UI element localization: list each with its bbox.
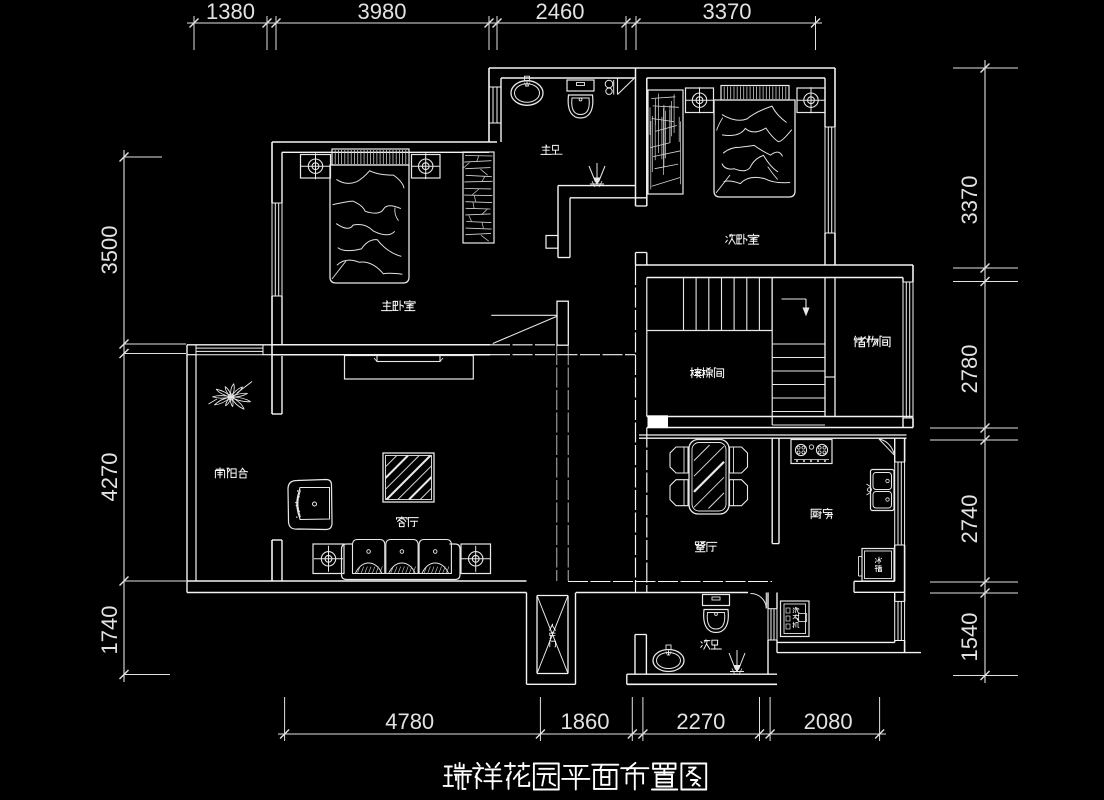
svg-text:2270: 2270	[676, 709, 725, 734]
svg-text:2740: 2740	[957, 495, 982, 544]
svg-text:4780: 4780	[385, 709, 434, 734]
svg-text:2460: 2460	[536, 0, 585, 24]
svg-text:1380: 1380	[206, 0, 255, 24]
svg-text:1860: 1860	[561, 709, 610, 734]
svg-text:3500: 3500	[97, 226, 122, 275]
svg-text:2080: 2080	[804, 709, 853, 734]
svg-text:4270: 4270	[97, 453, 122, 502]
svg-text:3980: 3980	[358, 0, 407, 24]
svg-text:1740: 1740	[97, 606, 122, 655]
svg-text:1540: 1540	[957, 613, 982, 662]
svg-text:3370: 3370	[703, 0, 752, 24]
svg-text:2780: 2780	[957, 345, 982, 394]
svg-text:3370: 3370	[957, 176, 982, 225]
